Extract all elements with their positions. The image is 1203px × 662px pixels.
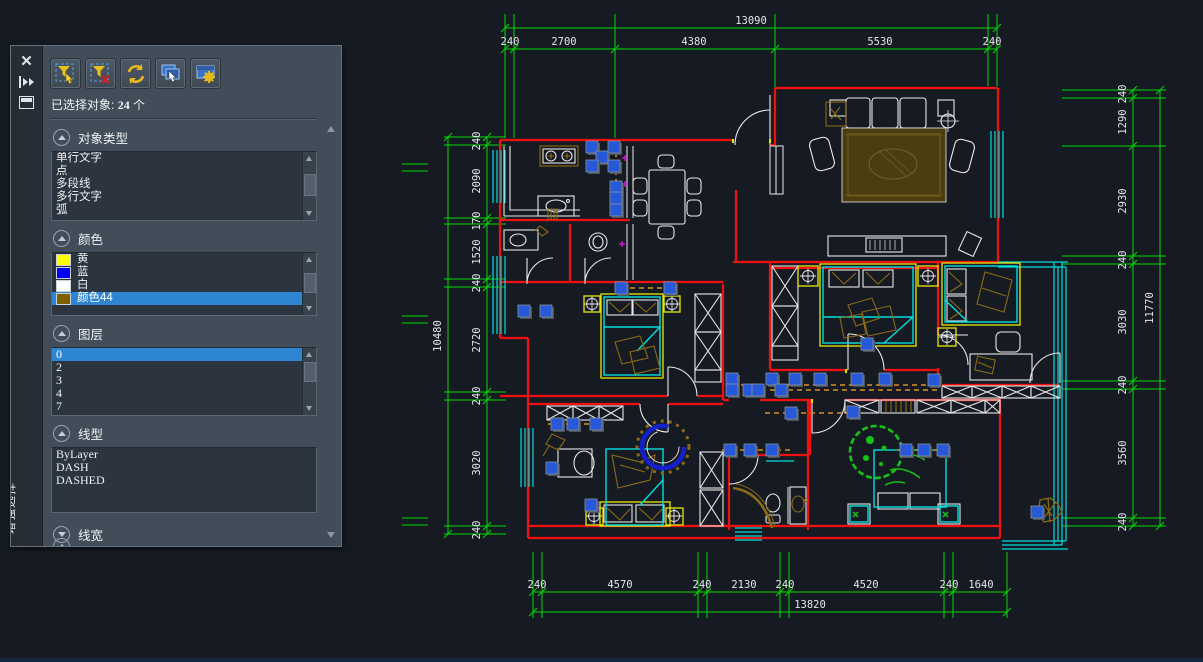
object-type-list[interactable]: 单行文字 点 多段线 多行文字 弧 [51,151,317,221]
dim-label: 240 [1117,251,1129,270]
collapse-button[interactable] [53,129,70,146]
dim-label: 4380 [681,36,706,48]
selection-grip[interactable] [726,373,738,385]
statusbar-edge [0,658,1203,662]
list-item[interactable]: 7 [52,400,316,413]
selection-grip[interactable] [785,407,797,419]
list-item[interactable]: ByLayer [52,448,316,461]
selection-settings-button[interactable] [190,58,221,89]
dim-label: 240 [1117,513,1129,532]
dim-label: 3020 [471,450,483,475]
select-window-button[interactable] [155,58,186,89]
dim-label: 240 [528,579,547,591]
selection-grip[interactable] [847,406,859,418]
selection-grip[interactable] [610,181,622,193]
panel-scrollbar[interactable] [324,126,338,538]
selection-grip[interactable] [937,444,949,456]
list-item[interactable]: 点 [52,165,316,178]
selection-grip[interactable] [775,384,787,396]
selection-grip[interactable] [1031,506,1043,518]
dim-label: 240 [501,36,520,48]
dim-label: 240 [1117,85,1129,104]
dim-label: 240 [940,579,959,591]
list-item[interactable]: 多段线 [52,178,316,191]
list-item[interactable]: 多行文字 [52,191,316,204]
selection-grip[interactable] [585,499,597,511]
color-swatch [56,280,71,292]
color-swatch [56,267,71,279]
dim-label: 2090 [471,168,483,193]
dim-label: 240 [693,579,712,591]
selection-grip[interactable] [610,192,622,204]
selection-grip[interactable] [551,418,563,430]
selection-grip[interactable] [928,374,940,386]
selection-grip[interactable] [586,160,598,172]
selection-grip[interactable] [615,282,627,294]
dim-bottom-overall: 13820 [794,599,826,611]
properties-window-icon[interactable] [18,96,36,109]
dim-label: 240 [471,132,483,151]
color-list[interactable]: 黄 蓝 白 颜色44 [51,252,317,316]
selection-grip[interactable] [608,160,620,172]
selection-grip[interactable] [590,418,602,430]
list-item[interactable]: 4 [52,387,316,400]
dim-label: 5530 [867,36,892,48]
dim-label: 1640 [968,579,993,591]
collapse-button[interactable] [53,230,70,247]
selection-grip[interactable] [664,282,676,294]
selection-status: 已选择对象: 24 个 [51,96,317,113]
dim-label: 240 [983,36,1002,48]
dim-label: 4520 [853,579,878,591]
selection-grip[interactable] [567,418,579,430]
selection-grip[interactable] [766,373,778,385]
reselect-button[interactable] [120,58,151,89]
list-item[interactable]: 黄 [52,253,316,266]
collapse-button[interactable] [53,325,70,342]
selection-grip[interactable] [879,373,891,385]
selection-grip[interactable] [546,462,558,474]
list-item[interactable]: 2 [52,361,316,374]
list-item[interactable]: 蓝 [52,266,316,279]
walls[interactable] [500,88,1060,538]
dim-label: 1290 [1117,109,1129,134]
dim-label: 4570 [607,579,632,591]
dim-label: 2930 [1117,188,1129,213]
selection-grip[interactable] [861,338,873,350]
close-icon[interactable]: ✕ [18,52,36,70]
plant-circle [850,426,948,517]
panel-titlebar: ✕ 增强选择 [11,46,43,546]
dim-label: 240 [776,579,795,591]
selection-grip[interactable] [851,373,863,385]
dim-top-overall: 13090 [735,15,767,27]
dim-label: 240 [1117,376,1129,395]
selection-grip[interactable] [726,384,738,396]
dim-label: 1520 [471,239,483,264]
linetype-list[interactable]: ByLayer DASH DASHED [51,447,317,513]
selection-grip[interactable] [744,444,756,456]
list-item[interactable]: 白 [52,279,316,292]
section-color: 颜色 [53,229,317,248]
dim-label: 240 [471,387,483,406]
scrollbar[interactable] [302,348,316,415]
white-partitions [627,146,788,524]
filter-clear-button[interactable] [85,58,116,89]
collapse-button[interactable] [53,425,70,442]
selection-grip[interactable] [752,384,764,396]
selection-grip[interactable] [814,373,826,385]
selection-grip[interactable] [724,444,736,456]
list-item[interactable]: 弧 [52,204,316,217]
selection-grip[interactable] [610,204,622,216]
dock-side-icon[interactable] [18,76,36,88]
dim-left-overall: 10480 [432,320,444,352]
layer-list[interactable]: 0 2 3 4 7 [51,347,317,416]
selection-grip[interactable] [918,444,930,456]
selection-grip[interactable] [608,141,620,153]
dim-label: 2720 [471,327,483,352]
dim-label: 240 [471,521,483,540]
selection-grip[interactable] [900,444,912,456]
dim-right-overall: 11770 [1144,292,1156,324]
dimension-lines [402,14,1166,618]
selection-grip[interactable] [789,373,801,385]
filter-select-button[interactable] [50,58,81,89]
list-item[interactable]: 3 [52,374,316,387]
scrollbar[interactable] [302,152,316,220]
dim-label: 3030 [1117,309,1129,334]
section-lineweight: 线宽 [53,525,317,544]
dim-label: 3560 [1117,440,1129,465]
selection-grip[interactable] [518,305,530,317]
section-layer: 图层 [53,324,317,343]
selection-grip[interactable] [540,305,552,317]
panel-tab-label: 增强选择 [10,482,18,534]
dim-label: 240 [471,274,483,293]
color-swatch [56,293,71,305]
list-item[interactable]: DASHED [52,474,316,487]
panel-toolbar [50,58,317,89]
section-object-type: 对象类型 [53,128,317,147]
list-item-selected[interactable]: 颜色44 [52,292,316,305]
section-clipped [53,538,70,547]
dim-label: 2700 [551,36,576,48]
color-swatch [56,254,71,266]
panel-body: 已选择对象: 24 个 对象类型 单行文字 点 多段线 多行文字 弧 颜色 黄 … [43,46,341,546]
dim-label: 2130 [731,579,756,591]
list-item[interactable]: 单行文字 [52,152,316,165]
scrollbar[interactable] [302,253,316,315]
dim-label: 170 [471,212,483,231]
section-linetype: 线型 [53,424,317,443]
enhanced-selection-panel[interactable]: ✕ 增强选择 已选择对象: [10,45,342,547]
list-item-selected[interactable]: 0 [52,348,316,361]
selection-grip[interactable] [766,444,778,456]
divider [50,118,317,120]
